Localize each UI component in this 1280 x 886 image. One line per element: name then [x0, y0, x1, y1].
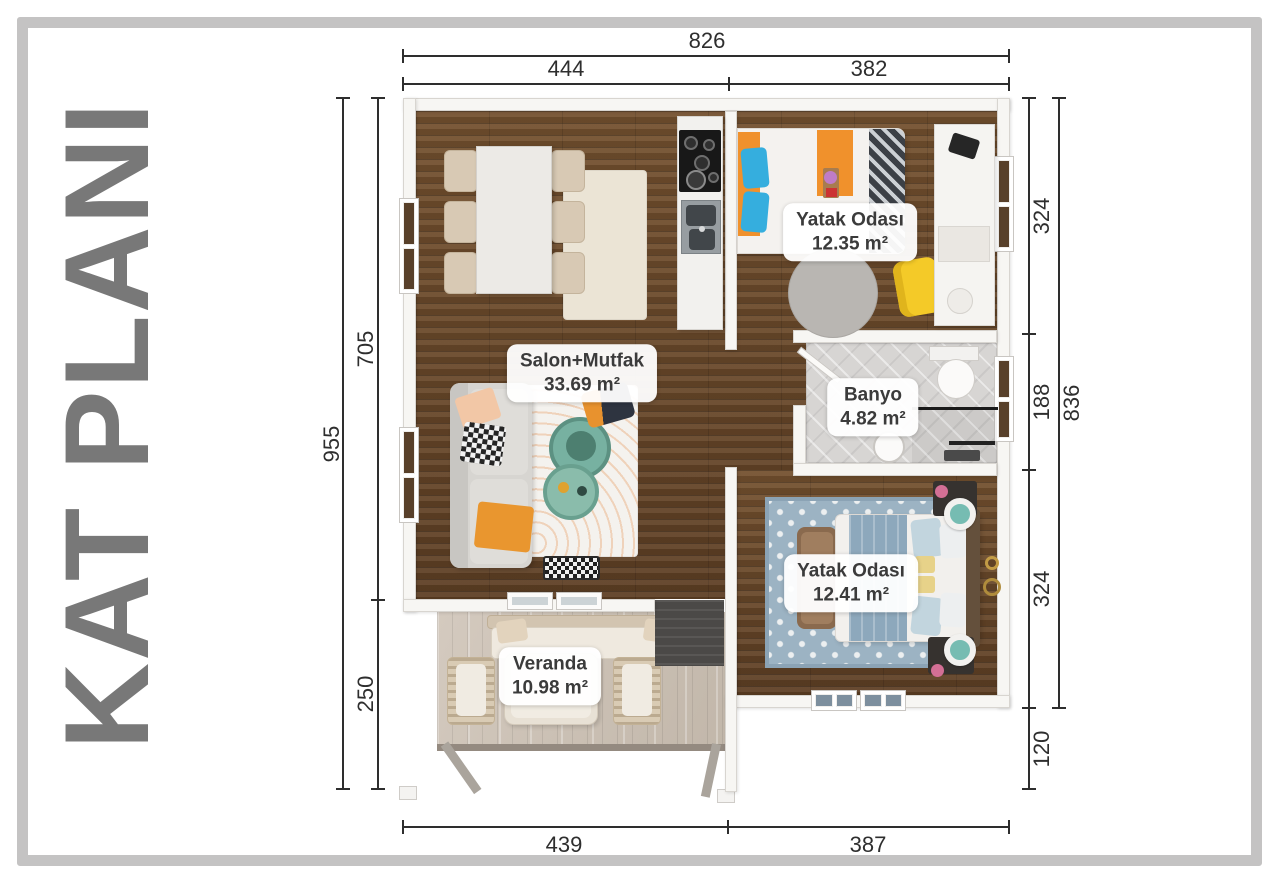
dim-tick [402, 820, 404, 834]
room-area: 12.41 m² [797, 583, 905, 607]
sink-basin [689, 229, 715, 250]
room-area: 33.69 m² [520, 373, 644, 397]
dim-top-segment-1: 444 [526, 56, 606, 82]
room-area: 12.35 m² [796, 232, 904, 256]
wall-bathroom-south [793, 463, 997, 476]
dining-chair [444, 201, 478, 243]
wall-bathroom-west [793, 405, 806, 470]
dim-tick [1052, 707, 1066, 709]
gold-wall-decor [983, 578, 1001, 596]
coffee-table-large-tray [566, 431, 596, 461]
dining-chair [551, 252, 585, 294]
orange-throw [474, 501, 535, 553]
dim-tick [1008, 77, 1010, 91]
window-pane [998, 401, 1010, 439]
window-bedroom1-east [994, 156, 1014, 252]
wicker-armchair-right-cushion [622, 664, 652, 716]
room-name: Banyo [840, 383, 905, 407]
window-bedroom2-south-1 [811, 690, 857, 711]
dim-tick [336, 788, 350, 790]
dining-rug [563, 170, 647, 320]
wardrobe-drawers [938, 226, 990, 262]
dim-right-segment-2: 188 [1029, 362, 1055, 442]
dim-bottom-segment-2: 387 [828, 832, 908, 858]
window-living-west-2 [399, 427, 419, 523]
pink-flowers-bottom [931, 664, 944, 677]
cooktop-burner [703, 139, 715, 151]
bed1-blue-pillow [740, 147, 769, 189]
bed1-blue-pillow [740, 191, 769, 233]
dim-tick [1022, 469, 1036, 471]
dim-top-total: 826 [667, 28, 747, 54]
french-door-right [556, 592, 602, 610]
dim-tick [371, 599, 385, 601]
dim-bottom-segment-1: 439 [524, 832, 604, 858]
window-living-west-1 [399, 198, 419, 294]
dim-tick [1022, 97, 1036, 99]
dim-right-segment-4: 120 [1029, 709, 1055, 789]
window-pane [864, 694, 882, 707]
dim-tick [371, 788, 385, 790]
gold-wall-decor [985, 556, 999, 570]
window-pane [403, 431, 415, 474]
dim-tick [402, 49, 404, 63]
dim-top-segment-2: 382 [829, 56, 909, 82]
room-label-living-kitchen: Salon+Mutfak 33.69 m² [507, 344, 657, 402]
bed2-pillow-yellow [915, 576, 935, 593]
pink-flowers-top [935, 485, 948, 498]
room-name: Veranda [512, 652, 588, 676]
window-pane [403, 248, 415, 291]
window-pane [885, 694, 903, 707]
dim-tick [402, 77, 404, 91]
door-glass [561, 597, 597, 605]
bed1-book [826, 188, 837, 197]
bed2-pillow-yellow [915, 556, 935, 573]
dim-tick [1022, 333, 1036, 335]
dining-chair [551, 201, 585, 243]
window-pane [998, 160, 1010, 203]
window-pane [998, 206, 1010, 249]
room-name: Salon+Mutfak [520, 349, 644, 373]
door-glass [512, 597, 548, 605]
bed2-headboard [966, 509, 980, 647]
dim-tick [1052, 97, 1066, 99]
cooktop-burner [708, 172, 719, 183]
wall-north [403, 98, 1010, 111]
cooktop-burner [694, 155, 710, 171]
dim-left-segment-1: 705 [353, 309, 379, 389]
towel-bar [949, 441, 995, 445]
room-area: 4.82 m² [840, 407, 905, 431]
dim-tick [1008, 49, 1010, 63]
window-pane [998, 360, 1010, 398]
dim-tick [371, 97, 385, 99]
table-decor-orange [558, 482, 569, 493]
dim-line-top-total [403, 55, 1010, 57]
french-door-left [507, 592, 553, 610]
veranda-deck-edge [437, 744, 725, 751]
dining-table [476, 146, 552, 294]
bath-caddy [944, 450, 980, 461]
window-pane [815, 694, 833, 707]
outdoor-pillow [496, 618, 529, 644]
bed1-flower [824, 171, 837, 184]
sink-basin [686, 205, 716, 226]
window-pane [403, 202, 415, 245]
round-mirror-top [944, 498, 976, 530]
window-bedroom2-south-2 [860, 690, 906, 711]
room-name: Yatak Odası [796, 208, 904, 232]
dim-tick [727, 820, 729, 834]
coffee-table-small [543, 464, 599, 520]
dim-right-segment-1: 324 [1029, 176, 1055, 256]
room-label-veranda: Veranda 10.98 m² [499, 647, 601, 705]
floor-plan-page: KAT PLANI [0, 0, 1280, 886]
dim-right-total: 836 [1059, 363, 1085, 443]
bedroom1-round-rug [788, 248, 878, 338]
vanity-stool [947, 288, 973, 314]
wicker-armchair-left-cushion [456, 664, 486, 716]
checkered-pillow [459, 421, 506, 466]
wall-kitchen-bedroom1 [725, 111, 737, 350]
room-area: 10.98 m² [512, 676, 588, 700]
bed2-pillow-white [939, 592, 967, 627]
dining-chair [444, 150, 478, 192]
toilet-bowl [937, 359, 975, 399]
cooktop-burner [684, 136, 698, 150]
room-label-bathroom: Banyo 4.82 m² [827, 378, 918, 436]
bathroom-sink [873, 431, 905, 463]
room-label-bedroom1: Yatak Odası 12.35 m² [783, 203, 917, 261]
dim-line-top-segments [403, 83, 1010, 85]
page-title: KAT PLANI [42, 85, 172, 765]
dim-tick [1008, 820, 1010, 834]
dim-left-segment-2: 250 [353, 654, 379, 734]
dim-right-segment-3: 324 [1029, 549, 1055, 629]
living-doormat [543, 556, 600, 580]
round-mirror-bottom [944, 634, 976, 666]
cooktop-burner [686, 170, 706, 190]
dining-chair [551, 150, 585, 192]
dim-tick [728, 77, 730, 91]
dim-left-total: 955 [319, 404, 345, 484]
shower-glass-divider [912, 407, 998, 410]
entrance-door-mat [655, 600, 724, 666]
wall-bedroom2-west [725, 467, 737, 792]
wall-west [403, 98, 416, 612]
dining-chair [444, 252, 478, 294]
window-bathroom-east [994, 356, 1014, 442]
sink-faucet [699, 226, 705, 232]
table-decor-dark [577, 486, 587, 496]
room-label-bedroom2: Yatak Odası 12.41 m² [784, 554, 918, 612]
window-pane [403, 477, 415, 520]
dim-line-bottom [403, 826, 1010, 828]
room-name: Yatak Odası [797, 559, 905, 583]
veranda-post-left [399, 786, 417, 800]
window-pane [836, 694, 854, 707]
dim-tick [336, 97, 350, 99]
